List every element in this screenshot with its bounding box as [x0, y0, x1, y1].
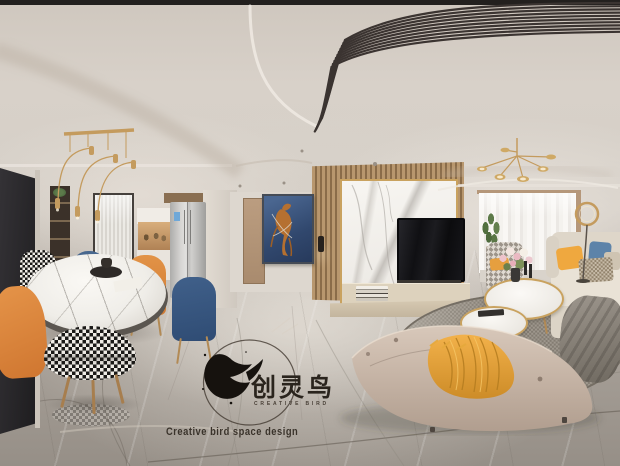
watermark-tagline: Creative bird space design: [166, 426, 298, 438]
teapot: [101, 258, 112, 268]
blue-chair-foreground: [172, 277, 216, 341]
candlesticks: [524, 261, 527, 275]
logo-english-text: CREATIVE BIRD: [254, 401, 329, 407]
books-stack: [356, 286, 388, 301]
wall-sconce: [318, 236, 324, 252]
flower-vase: [511, 268, 520, 282]
tv: [397, 218, 465, 282]
crown-molding-right: [436, 184, 620, 187]
panorama-render: 创灵鸟 CREATIVE BIRD Creative bird space de…: [0, 0, 620, 466]
dining-table-top: [26, 254, 166, 332]
logo-chinese-text: 创灵鸟: [251, 368, 335, 404]
niche-plant: [53, 188, 66, 197]
sofa-pillow-pattern: [578, 257, 614, 283]
horse-painting: [262, 194, 314, 264]
kitchen-open-shelf: [138, 222, 171, 250]
fridge-handles: [184, 210, 185, 244]
fridge-energy-label: [174, 212, 180, 221]
crown-molding-left: [0, 164, 232, 167]
ceiling-top-band: [0, 0, 620, 5]
